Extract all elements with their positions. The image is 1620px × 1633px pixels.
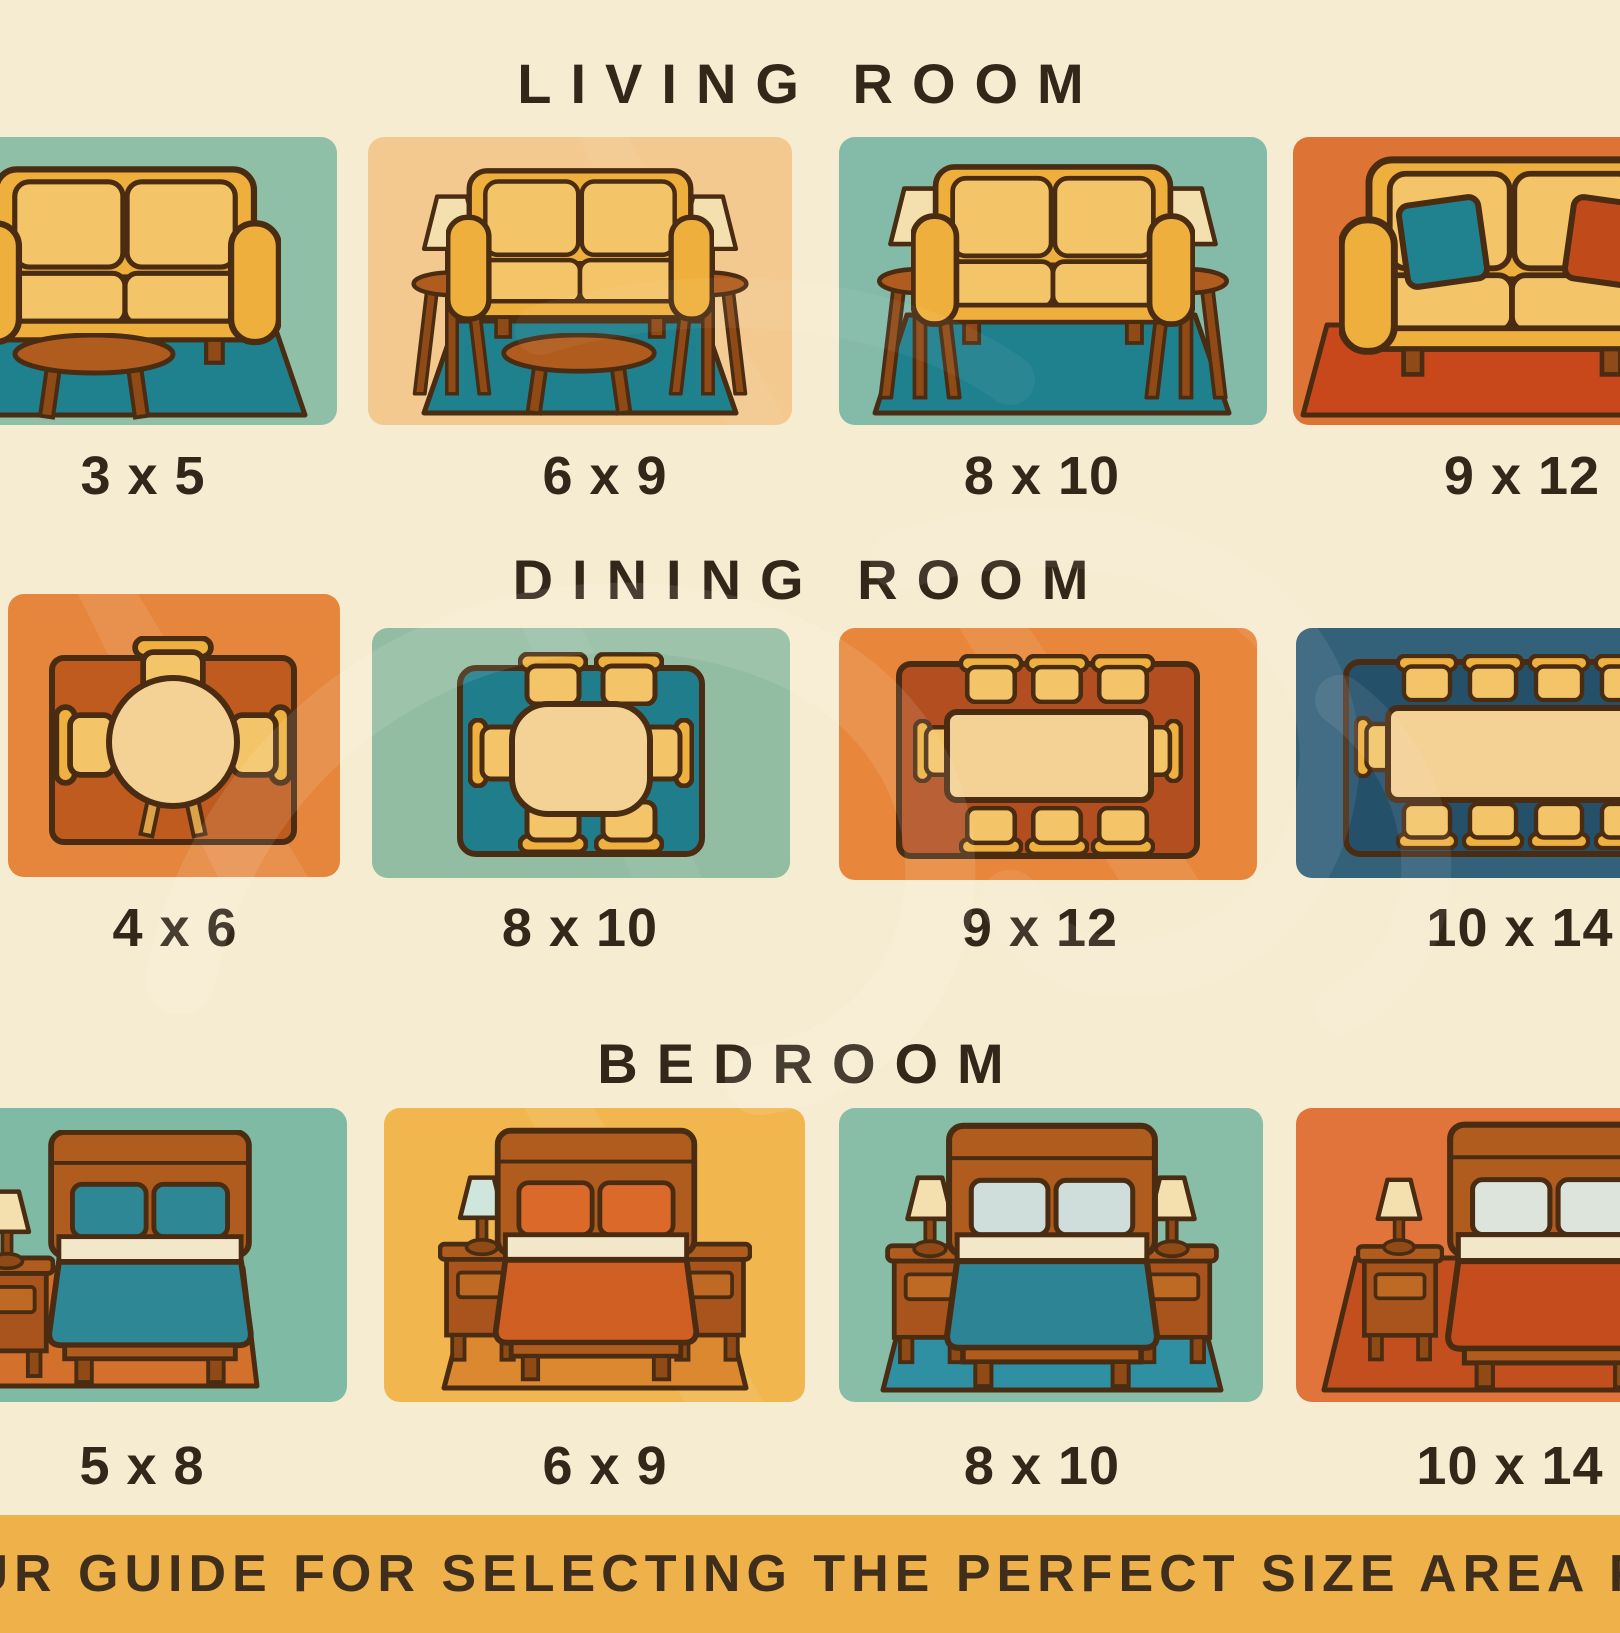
tile-dining-room-8x10 <box>372 628 790 878</box>
size-label-bedroom-6x9: 6 x 9 <box>405 1438 805 1494</box>
size-label-living-6x9: 6 x 9 <box>405 448 805 504</box>
tile-living-room-8x10 <box>839 137 1267 425</box>
size-label-bedroom-10x14: 10 x 14 <box>1310 1438 1620 1494</box>
size-label-dining-10x14: 10 x 14 <box>1320 900 1620 956</box>
eight-seat-dining-table-topview-illustration <box>839 628 1257 880</box>
sofa-throw-pillows-illustration <box>1293 137 1620 425</box>
six-seat-dining-table-topview-illustration <box>372 628 790 878</box>
tile-bedroom-8x10 <box>839 1108 1263 1402</box>
size-label-bedroom-5x8: 5 x 8 <box>0 1438 342 1494</box>
tile-dining-room-4x6 <box>8 594 340 877</box>
tile-living-room-6x9 <box>368 137 792 425</box>
rug-size-guide-poster: LIVING ROOM DINING ROOM BEDROOM <box>0 0 1620 1633</box>
tile-living-room-9x12 <box>1293 137 1620 425</box>
tile-bedroom-6x9 <box>384 1108 805 1402</box>
bed-two-nightstands-illustration <box>384 1108 805 1402</box>
tile-dining-room-9x12 <box>839 628 1257 880</box>
bottom-banner: OUR GUIDE FOR SELECTING THE PERFECT SIZE… <box>0 1515 1620 1633</box>
bed-two-nightstands-lamps-illustration <box>839 1108 1263 1402</box>
size-label-dining-9x12: 9 x 12 <box>840 900 1240 956</box>
round-dining-table-topview-illustration <box>8 594 340 877</box>
loveseat-lamps-coffee-table-illustration <box>368 137 792 425</box>
ten-seat-dining-table-topview-illustration <box>1296 628 1620 878</box>
size-label-dining-4x6: 4 x 6 <box>0 900 375 956</box>
tile-bedroom-10x14 <box>1296 1108 1620 1402</box>
tile-dining-room-10x14 <box>1296 628 1620 878</box>
bed-nightstand-lamp-illustration <box>1296 1108 1620 1402</box>
size-label-living-9x12: 9 x 12 <box>1322 448 1620 504</box>
loveseat-two-lamp-tables-illustration <box>839 137 1267 425</box>
section-title-bedroom: BEDROOM <box>0 1032 1620 1096</box>
size-label-bedroom-8x10: 8 x 10 <box>842 1438 1242 1494</box>
size-label-living-8x10: 8 x 10 <box>842 448 1242 504</box>
section-title-living-room: LIVING ROOM <box>0 52 1620 116</box>
section-title-dining-room: DINING ROOM <box>0 548 1620 612</box>
bed-nightstand-illustration <box>0 1108 347 1402</box>
size-label-living-3x5: 3 x 5 <box>0 448 343 504</box>
loveseat-coffee-table-illustration <box>0 137 337 425</box>
size-label-dining-8x10: 8 x 10 <box>380 900 780 956</box>
banner-text: OUR GUIDE FOR SELECTING THE PERFECT SIZE… <box>0 1515 1620 1633</box>
tile-living-room-3x5 <box>0 137 337 425</box>
tile-bedroom-5x8 <box>0 1108 347 1402</box>
